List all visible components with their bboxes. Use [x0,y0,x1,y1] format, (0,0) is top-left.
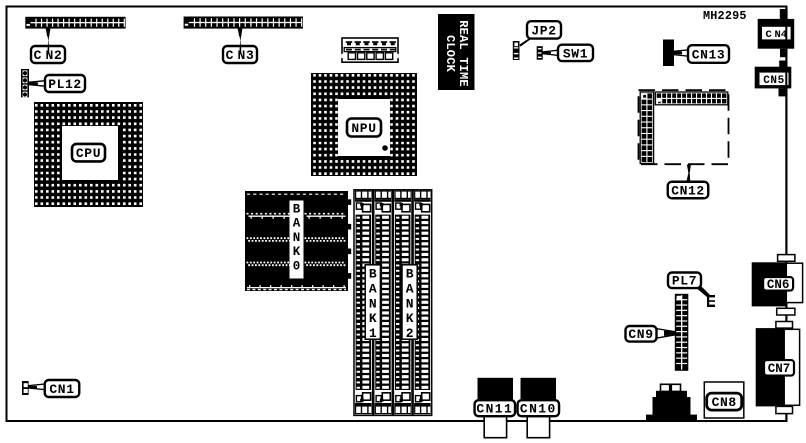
svg-text:CN1: CN1 [49,382,74,397]
svg-text:CN6: CN6 [767,278,790,292]
svg-text:N: N [406,296,414,311]
svg-text:N: N [293,231,301,245]
svg-text:K: K [406,311,414,326]
svg-text:CN5: CN5 [763,75,785,87]
svg-text:CN9: CN9 [628,327,653,342]
svg-text:REAL TIME: REAL TIME [456,20,470,87]
svg-text:CLOCK: CLOCK [443,35,457,73]
svg-text:JP2: JP2 [531,23,556,38]
svg-text:A: A [293,217,301,231]
svg-text:CPU: CPU [76,146,101,161]
svg-text:CN8: CN8 [712,395,737,410]
svg-text:PL7: PL7 [672,274,697,289]
svg-text:N: N [369,296,377,311]
svg-text:0: 0 [293,259,301,273]
svg-text:CN12: CN12 [671,183,705,198]
svg-text:NPU: NPU [351,121,376,136]
svg-text:PL12: PL12 [48,77,82,92]
svg-text:SW1: SW1 [563,46,588,61]
svg-text:A: A [369,281,377,296]
svg-text:CN13: CN13 [692,47,726,62]
svg-text:2: 2 [406,326,414,341]
svg-text:CN4: CN4 [766,29,788,41]
svg-text:CN7: CN7 [768,362,791,376]
svg-text:1: 1 [369,326,377,341]
svg-text:K: K [293,245,301,259]
svg-text:K: K [369,311,377,326]
svg-text:B: B [293,203,301,217]
svg-text:B: B [406,267,414,282]
svg-text:CN10: CN10 [520,402,557,417]
svg-text:A: A [406,281,414,296]
svg-text:MH2295: MH2295 [703,9,747,23]
svg-text:CN11: CN11 [476,402,513,417]
svg-text:B: B [369,267,377,282]
